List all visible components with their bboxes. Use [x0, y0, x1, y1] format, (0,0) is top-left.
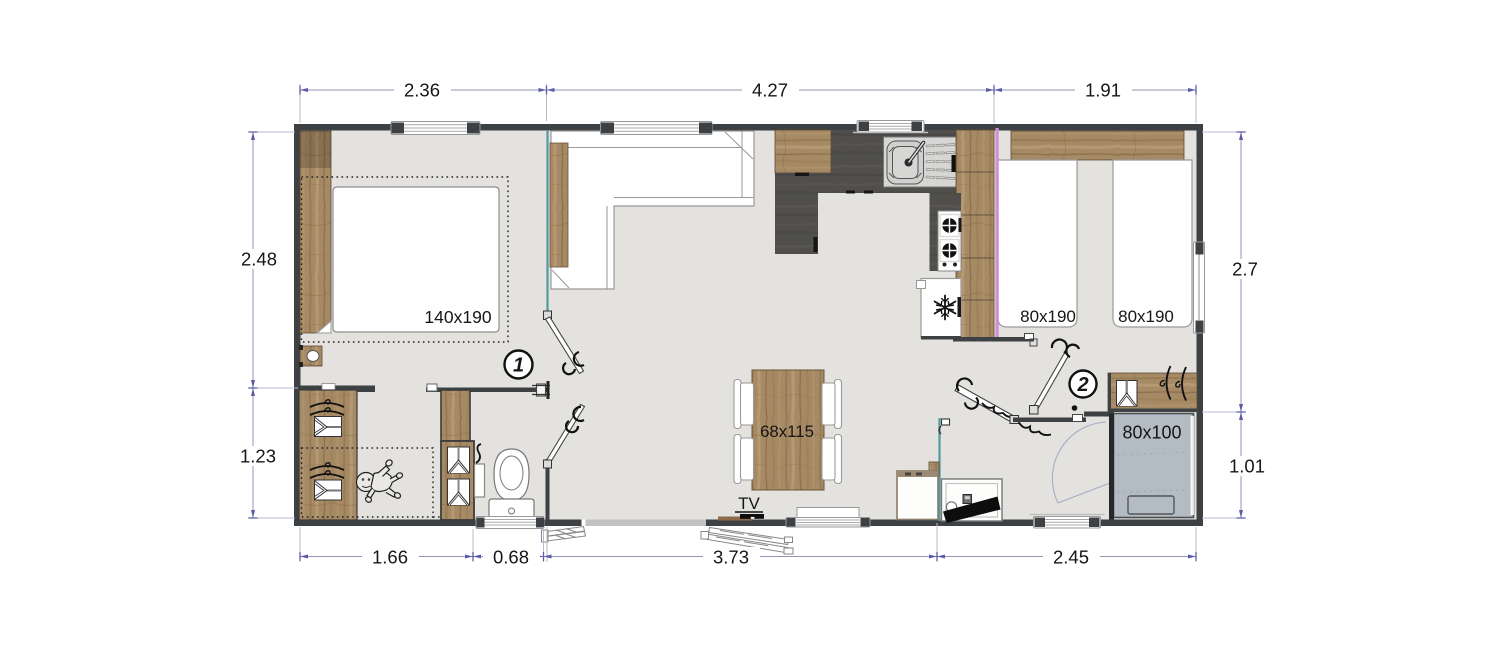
- svg-text:1: 1: [513, 355, 524, 377]
- svg-text:68x115: 68x115: [760, 422, 814, 441]
- svg-text:2.48: 2.48: [241, 249, 277, 270]
- svg-text:0.68: 0.68: [493, 547, 529, 568]
- svg-text:4.27: 4.27: [752, 80, 788, 101]
- svg-text:140x190: 140x190: [424, 307, 491, 327]
- svg-text:80x190: 80x190: [1020, 307, 1076, 326]
- svg-text:2.36: 2.36: [404, 80, 440, 101]
- svg-text:2.7: 2.7: [1232, 259, 1258, 280]
- svg-text:2.45: 2.45: [1053, 547, 1089, 568]
- svg-text:80x190: 80x190: [1118, 307, 1174, 326]
- svg-text:1.23: 1.23: [240, 446, 276, 467]
- svg-text:3.73: 3.73: [713, 547, 749, 568]
- svg-text:1.91: 1.91: [1085, 80, 1121, 101]
- svg-text:80x100: 80x100: [1122, 423, 1181, 443]
- svg-text:2: 2: [1076, 374, 1088, 396]
- svg-text:1.66: 1.66: [372, 547, 408, 568]
- svg-text:TV: TV: [738, 494, 760, 513]
- svg-text:1.01: 1.01: [1229, 456, 1265, 477]
